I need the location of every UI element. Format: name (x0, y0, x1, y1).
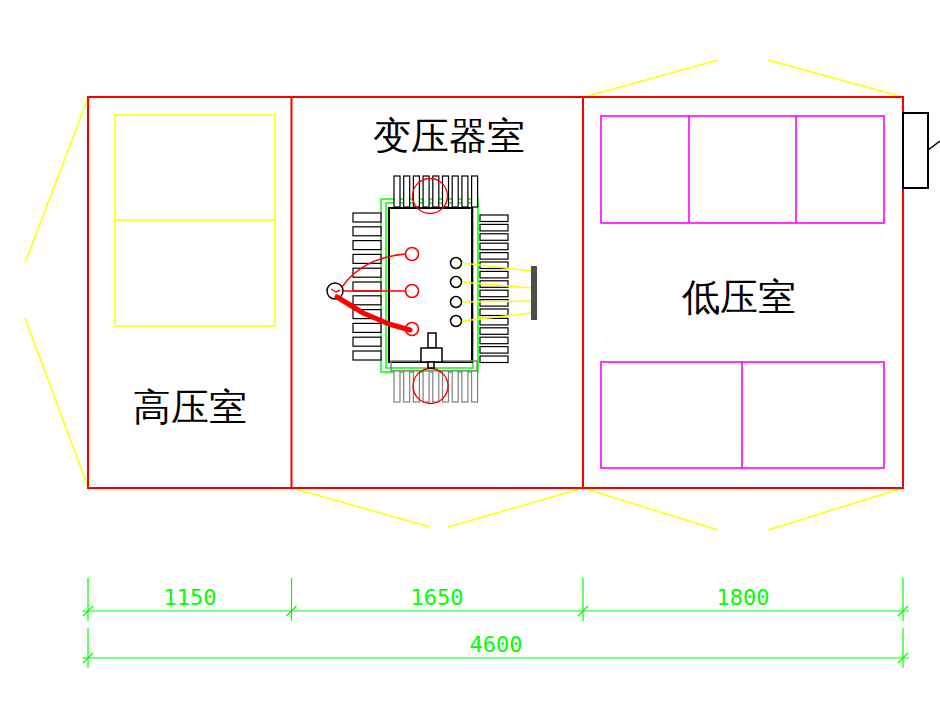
radiator-fin (353, 227, 381, 236)
radiator-fin (404, 176, 410, 207)
busbar (531, 266, 537, 320)
radiator-fins-right (480, 215, 508, 363)
radiator-fin (480, 300, 508, 307)
hv-bushing-1 (406, 248, 419, 261)
radiator-fin (353, 241, 381, 250)
lv-lead-3 (462, 301, 531, 302)
radiator-fin (353, 282, 381, 291)
radiator-fin (472, 176, 478, 207)
dimension-lines: 1150 1650 1800 4600 (82, 578, 909, 668)
transformer-assembly (327, 176, 537, 404)
fold-line-bottom-right-left (583, 488, 718, 530)
valve-stem (428, 333, 436, 348)
radiator-fin (353, 337, 381, 346)
fold-line-bottom-mid-right (448, 488, 583, 527)
room-label-high-voltage: 高压室 (133, 385, 247, 429)
room-label-low-voltage: 低压室 (681, 275, 796, 319)
room-label-transformer: 变压器室 (373, 114, 525, 158)
radiator-fin (394, 371, 400, 402)
radiator-fin (480, 347, 508, 354)
fold-line-bottom-right-right (768, 488, 903, 530)
vent-duct (903, 113, 928, 188)
radiator-fin (353, 213, 381, 222)
radiator-fin (480, 224, 508, 231)
radiator-fin (480, 337, 508, 344)
valve-body (421, 348, 442, 362)
radiator-fin (480, 243, 508, 250)
radiator-fin (353, 323, 381, 332)
radiator-fin (480, 318, 508, 325)
radiator-fin (423, 371, 429, 402)
lv-cabinet-top (601, 116, 884, 223)
dim-label-total: 4600 (470, 632, 523, 657)
lv-bushing-3 (451, 297, 462, 308)
radiator-fin (480, 271, 508, 278)
radiator-fin (480, 215, 508, 222)
radiator-fin (353, 296, 381, 305)
radiator-fin (353, 351, 381, 360)
radiator-fin (480, 309, 508, 316)
fold-line-left-upper (25, 98, 88, 263)
radiator-fin (480, 328, 508, 335)
radiator-fin (433, 371, 439, 402)
valve-tip (428, 362, 434, 368)
radiator-fin (480, 234, 508, 241)
vent-duct-group (903, 113, 940, 188)
radiator-fin (480, 253, 508, 260)
dim-label-seg1: 1150 (164, 585, 217, 610)
radiator-fins-left (353, 213, 381, 360)
hv-cabinet-group (115, 115, 275, 326)
radiator-fin (423, 176, 429, 207)
dim-label-seg3: 1800 (717, 585, 770, 610)
lv-bushing-1 (451, 258, 462, 269)
fold-line-bottom-mid-left (292, 488, 430, 527)
fold-line-top-right-asc (584, 60, 718, 97)
radiator-fins-bottom (394, 371, 478, 402)
radiator-fin (353, 268, 381, 277)
radiator-fin (462, 371, 468, 402)
radiator-fin (462, 176, 468, 207)
radiator-fins-top (394, 176, 478, 207)
vent-leader-line (928, 141, 940, 150)
radiator-fin (394, 176, 400, 207)
hv-bushing-2 (406, 285, 419, 298)
radiator-fin (480, 356, 508, 363)
radiator-fin (404, 371, 410, 402)
dim-label-seg2: 1650 (411, 585, 464, 610)
fold-line-top-right-desc (768, 60, 903, 97)
radiator-fin (480, 290, 508, 297)
fold-line-left-lower (25, 318, 88, 487)
radiator-fin (353, 254, 381, 263)
radiator-fin (452, 371, 458, 402)
floor-plan-drawing: 高压室 变压器室 低压室 1150 1650 1800 4600 (0, 0, 940, 713)
radiator-fin (472, 371, 478, 402)
radiator-fin (452, 176, 458, 207)
lv-bushing-2 (451, 277, 462, 288)
lv-bushing-4 (451, 316, 462, 327)
